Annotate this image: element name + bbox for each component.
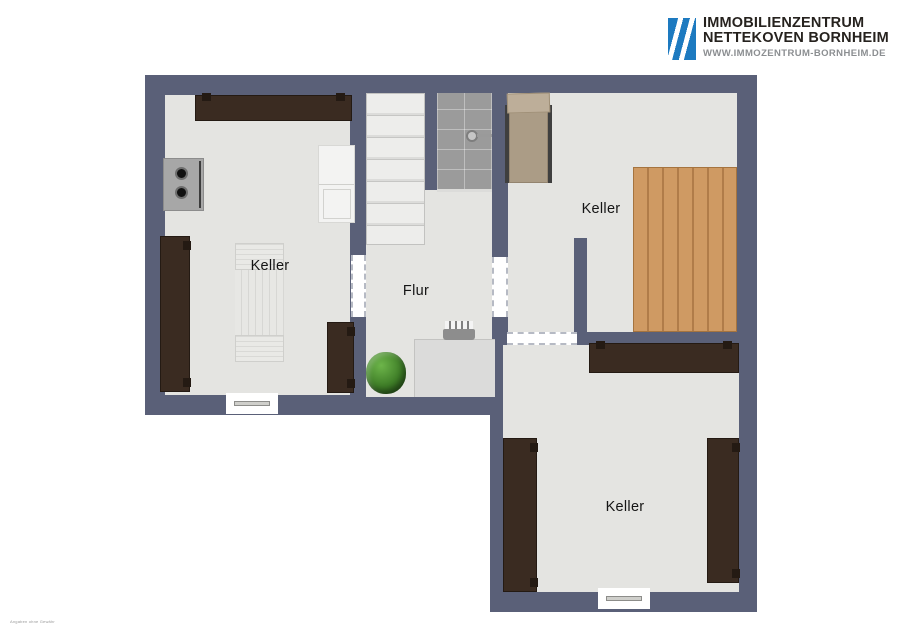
chair-back xyxy=(443,329,475,340)
wardrobe-left xyxy=(160,236,190,392)
lounger xyxy=(505,93,552,188)
shower-tiles xyxy=(437,93,492,190)
room-label-keller-bottom-right: Keller xyxy=(606,499,645,515)
sideboard-top-left xyxy=(195,95,352,121)
chair xyxy=(443,321,475,341)
rack-bottom xyxy=(235,335,284,362)
room-label-keller-top-right: Keller xyxy=(582,201,621,217)
shelf-right xyxy=(327,322,354,393)
room-label-flur: Flur xyxy=(403,283,429,299)
door-keller-left xyxy=(351,255,366,317)
sideboard-bottom-right xyxy=(589,343,739,373)
door-keller-bottom-right xyxy=(507,332,577,345)
rack-middle xyxy=(235,270,284,335)
washer-appliance xyxy=(163,158,204,211)
burner-icon xyxy=(175,186,188,199)
floor-keller-bottom-right xyxy=(503,345,739,592)
cabinet-door xyxy=(323,189,351,219)
shower-glass xyxy=(437,189,492,192)
floorplan: Keller Flur Keller Keller xyxy=(0,0,900,637)
stair-shower-divider-wall xyxy=(425,93,437,190)
wardrobe-bottom-right xyxy=(707,438,739,583)
window-left-room xyxy=(226,393,278,414)
shower-arm-icon xyxy=(477,134,492,137)
lounger-headrest xyxy=(507,92,551,113)
cabinet-divider xyxy=(319,184,354,185)
window-glazing xyxy=(234,401,270,406)
window-bottom-room xyxy=(598,588,650,609)
wardrobe-bottom-left xyxy=(503,438,537,592)
room-label-keller-left: Keller xyxy=(251,258,290,274)
page-root: { "branding": { "line1": "IMMOBILIENZENT… xyxy=(0,0,900,637)
wood-platform xyxy=(633,167,737,332)
fineprint: Angaben ohne Gewähr xyxy=(10,619,55,624)
burner-icon xyxy=(175,167,188,180)
lounger-bed xyxy=(509,111,548,183)
plant-icon xyxy=(366,352,406,394)
desk xyxy=(414,339,495,397)
door-keller-top-right xyxy=(492,257,508,317)
appliance-edge xyxy=(199,161,201,208)
white-cabinet xyxy=(318,145,355,223)
staircase xyxy=(366,93,425,245)
wall-stub xyxy=(574,238,587,333)
window-glazing xyxy=(606,596,642,601)
